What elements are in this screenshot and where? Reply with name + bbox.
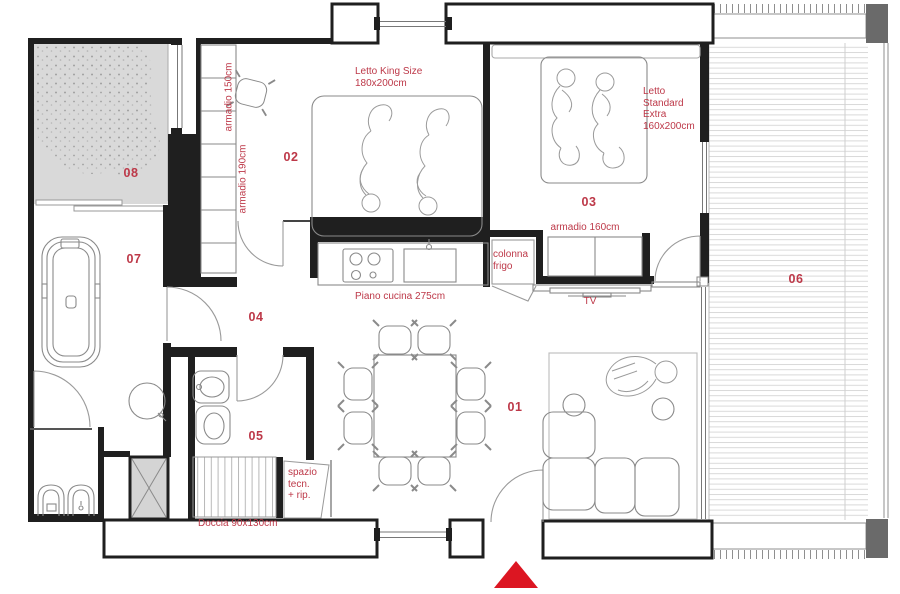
label-tv: TV — [584, 296, 597, 308]
person-bed-king-1 — [360, 105, 392, 212]
door-room05 — [237, 355, 283, 401]
fridge-door-swing — [492, 286, 536, 301]
room-number-03: 03 — [582, 195, 597, 209]
wc — [38, 485, 64, 516]
bathtub — [42, 237, 100, 367]
glass-wall-terrace — [702, 287, 706, 519]
entrance-wall — [543, 521, 712, 558]
kitchen-counter — [318, 239, 488, 285]
terrace-railing-bottom — [712, 550, 866, 559]
chair — [373, 320, 417, 360]
person-sofa — [606, 357, 677, 397]
dining-table — [374, 355, 456, 457]
bed-king — [312, 96, 482, 236]
sofa-pillow — [563, 394, 585, 416]
patio — [28, 34, 168, 211]
door-entrance — [491, 470, 543, 522]
label-spazio-tecnico: spazio tecn. + rip. — [288, 467, 317, 502]
coffee-table — [652, 398, 674, 420]
chair — [451, 362, 491, 406]
room-number-07: 07 — [127, 252, 142, 266]
label-armadio-190: armadio 190cm — [237, 145, 249, 214]
window-room03 — [703, 142, 707, 213]
washbasin — [193, 371, 229, 403]
floor-plan: 01 02 03 04 05 06 07 08 Letto King Size … — [0, 0, 900, 594]
label-colonna-frigo: colonna frigo — [493, 249, 528, 272]
chair — [412, 320, 456, 360]
room-number-06: 06 — [789, 272, 804, 286]
chair — [338, 362, 378, 406]
terrace-pillar-bottom — [866, 519, 888, 558]
room-number-08: 08 — [124, 166, 139, 180]
label-armadio-150: armadio 150cm — [223, 63, 235, 132]
room-number-01: 01 — [508, 400, 523, 414]
terrace-railing-top — [714, 4, 866, 13]
plan-linework — [0, 0, 900, 594]
person-bed-king-2 — [417, 109, 449, 215]
wardrobe-160 — [548, 237, 642, 276]
person-bed-std-1 — [552, 69, 579, 165]
bidet — [68, 485, 94, 516]
window-bottom — [380, 532, 446, 538]
stove — [343, 249, 393, 282]
chair — [451, 406, 491, 450]
door-room07 — [167, 287, 221, 341]
room-number-05: 05 — [249, 429, 264, 443]
window-top — [380, 22, 446, 27]
label-piano-cucina: Piano cucina 275cm — [355, 291, 445, 303]
room-number-02: 02 — [284, 150, 299, 164]
entrance-arrow-icon — [494, 561, 538, 588]
window-left — [178, 45, 183, 128]
shower-floor — [193, 457, 276, 517]
kitchen-sink — [404, 239, 456, 282]
headboard-shelf — [492, 45, 700, 58]
chair — [338, 406, 378, 450]
label-armadio-160: armadio 160cm — [551, 222, 620, 234]
label-letto-standard: Letto Standard Extra 160x200cm — [643, 86, 695, 132]
room-number-04: 04 — [249, 310, 264, 324]
door-wc — [34, 371, 90, 427]
label-doccia: Doccia 90x130cm — [198, 518, 277, 530]
person-bed-std-2 — [592, 73, 624, 168]
toilet-05 — [196, 406, 230, 444]
terrace-pillar-top — [866, 4, 888, 43]
door-room03 — [655, 236, 700, 281]
tv-bench2 — [652, 282, 700, 287]
sofa — [543, 353, 697, 519]
label-letto-king: Letto King Size 180x200cm — [355, 66, 422, 89]
door-room02 — [238, 221, 283, 266]
terrace-rail-right — [884, 43, 888, 518]
